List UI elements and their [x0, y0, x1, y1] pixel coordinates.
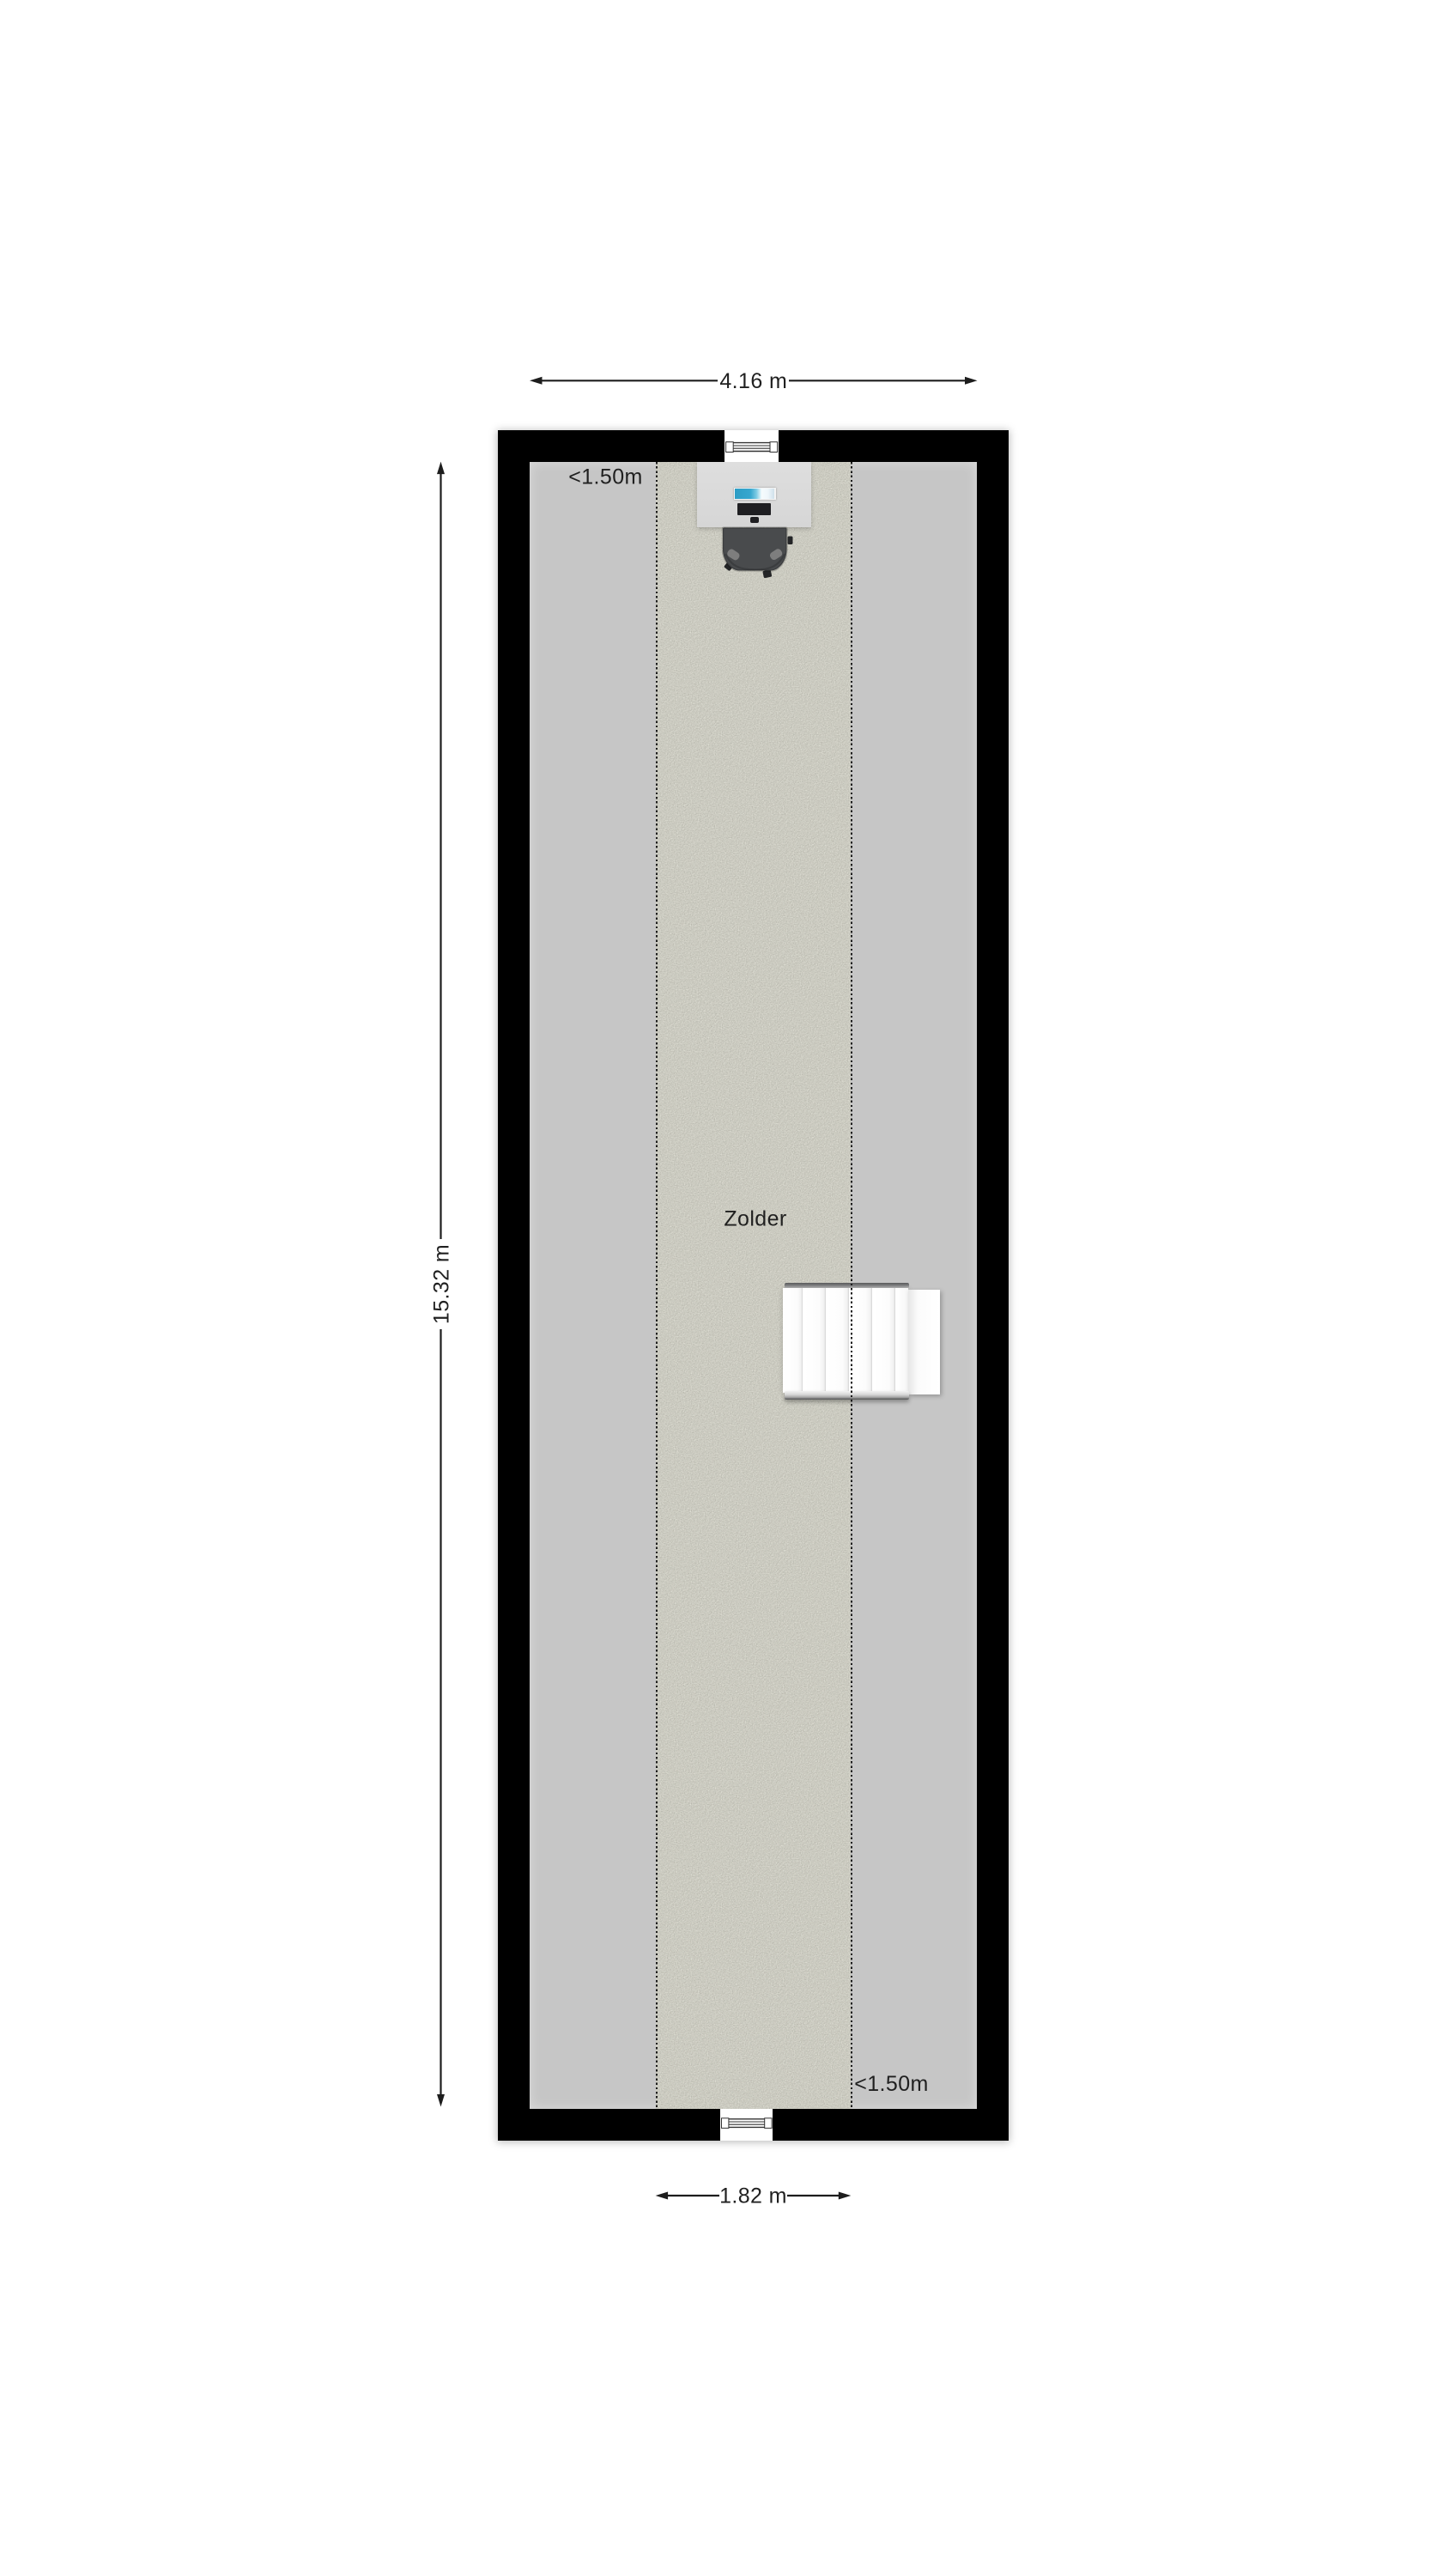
svg-text:<1.50m: <1.50m	[568, 465, 642, 489]
svg-text:4.16 m: 4.16 m	[719, 369, 787, 393]
svg-text:Zolder: Zolder	[724, 1206, 786, 1230]
svg-text:15.32 m: 15.32 m	[429, 1244, 453, 1324]
svg-text:<1.50m: <1.50m	[854, 2072, 928, 2096]
svg-text:1.82 m: 1.82 m	[719, 2184, 787, 2208]
